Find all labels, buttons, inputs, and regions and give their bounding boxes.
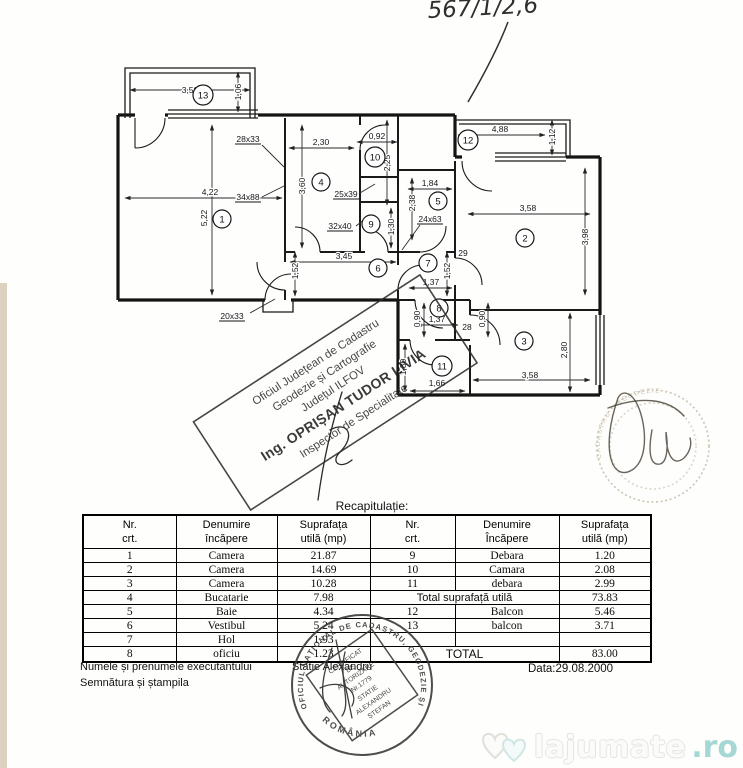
balcony-12-walls [455, 120, 570, 157]
cell: Camera [176, 577, 277, 591]
cell: 2.08 [559, 563, 651, 577]
stamp-line: Inspector de Specialitate [298, 382, 410, 461]
cell: 10.28 [277, 577, 370, 591]
dim-label: 1,80 [398, 358, 408, 375]
svg-text:567/1/2,6: 567/1/2,6 [427, 0, 539, 24]
stamp-line: Oficiul Județean de Cadastru [250, 317, 381, 408]
recap-title: Recapitulație: [82, 499, 662, 513]
window-band-room3 [596, 315, 604, 385]
table-row: 3 Camera 10.28 11 debara 2.99 [83, 577, 651, 591]
room-number: 12 [463, 135, 474, 146]
cert-line: ALEXANDRU [355, 687, 393, 717]
dim-label: 4,22 [202, 187, 219, 197]
dim-label: 3,58 [522, 370, 539, 380]
faint-round-stamp: CADASTRU · GEODEZIE · [595, 388, 709, 502]
interior-walls [285, 115, 600, 395]
dim-label: 2,25 [382, 154, 392, 171]
dim-label: 3,60 [297, 177, 307, 194]
cell: 2.99 [559, 577, 651, 591]
total-label: TOTAL [370, 647, 559, 663]
dim-label: 2,80 [559, 341, 569, 358]
dim-label: 1,52 [442, 262, 452, 279]
cell: 3 [83, 577, 176, 591]
stamp-line: Județul ILFOV [299, 364, 367, 414]
entry-threshold [263, 300, 293, 312]
recap-table: Nr. crt. Denumire încăpere Suprafața uti… [82, 514, 652, 663]
signature-stamp-label: Semnătura și ștampila [80, 677, 189, 689]
cell: Bucatarie [176, 591, 277, 605]
dim-label: 3,45 [336, 251, 353, 261]
room-number: 11 [437, 361, 447, 372]
watermark-logo-icon [477, 728, 529, 766]
window-band-room1 [168, 110, 258, 118]
cell: 21.87 [277, 549, 370, 563]
cell: 7.98 [277, 591, 370, 605]
cell [370, 633, 455, 647]
cell [559, 633, 651, 647]
handwritten-number: 567/1/2,6 [427, 0, 539, 102]
dim-label: 3,58 [520, 203, 537, 213]
cert-line: ȘTEFAN [367, 699, 393, 720]
cell: 8 [83, 647, 176, 663]
table-header-row: Nr. crt. Denumire încăpere Suprafața uti… [83, 515, 651, 549]
cell: 9 [370, 549, 455, 563]
cell: Camera [176, 549, 277, 563]
svg-text:ROMÂNIA: ROMÂNIA [321, 714, 379, 738]
dimension-labels: 3,50 1,06 28x33 2,30 0,92 4,88 1,12 34x8… [182, 83, 590, 388]
svg-text:CADASTRU · GEODEZIE ·: CADASTRU · GEODEZIE · [595, 388, 669, 460]
cell: 2 [83, 563, 176, 577]
dim-label: 1,12 [547, 128, 557, 145]
table-row: 5 Baie 4.34 12 Balcon 5.46 [83, 605, 651, 619]
cell: oficiu [176, 647, 277, 663]
scan-edge-shadow [0, 283, 7, 768]
cell: 14.69 [277, 563, 370, 577]
dim-label: 28 [462, 322, 472, 332]
dim-label: 34x88 [236, 192, 259, 202]
cell: Vestibul [176, 619, 277, 633]
window-band-room2 [495, 153, 566, 161]
dim-label: 4,88 [492, 124, 509, 134]
cell: 1.20 [559, 549, 651, 563]
dimension-lines [125, 72, 590, 392]
executant-label: Numele și prenumele executantului [80, 661, 252, 673]
header-cell: Suprafața utilă (mp) [559, 515, 651, 549]
dim-label: 1,37 [423, 277, 440, 287]
dim-label: 3,98 [580, 228, 590, 245]
date: Data:29.08.2000 [528, 663, 613, 675]
cell: 5 [83, 605, 176, 619]
watermark-tld: .ro [691, 730, 738, 765]
cell: 6 [83, 619, 176, 633]
dim-label: 25x39 [334, 189, 357, 199]
watermark-name: lajumate [534, 730, 686, 765]
dim-label: 5,22 [199, 209, 209, 226]
stamp-line: Geodezie și Cartografie [271, 338, 379, 414]
exterior-walls [118, 115, 600, 395]
diagonal-inspector-stamp: Oficiul Județean de Cadastru Geodezie și… [193, 275, 477, 510]
cell: 7 [83, 633, 176, 647]
total-value: 83.00 [559, 647, 651, 663]
dim-label: 1,06 [233, 83, 243, 100]
table-row: 4 Bucatarie 7.98 Total suprafață utilă 7… [83, 591, 651, 605]
scanned-cadastral-document: Recapitulație: Nr. crt. Denumire încăper… [0, 0, 743, 768]
room-numbers: 1 2 3 4 5 6 7 8 9 10 11 12 13 [193, 85, 534, 376]
dim-label: 1,66 [429, 378, 446, 388]
cell: Camera [176, 563, 277, 577]
room-number: 7 [425, 258, 430, 269]
cell: 4 [83, 591, 176, 605]
cell: 10 [370, 563, 455, 577]
door-arcs [135, 118, 500, 365]
cell: 3.71 [559, 619, 651, 633]
dim-label: 24x63 [418, 214, 441, 224]
stamp-line: Ing. OPRIȘAN TUDOR LIVIA [258, 345, 429, 464]
cell: 4.34 [277, 605, 370, 619]
cell: 12 [370, 605, 455, 619]
dim-label: 1,37 [429, 314, 446, 324]
cell: balcon [455, 619, 559, 633]
inspector-signature [318, 392, 352, 500]
room-number: 8 [436, 303, 441, 314]
room-number: 13 [198, 90, 209, 101]
cell: 13 [370, 619, 455, 633]
cell: 11 [370, 577, 455, 591]
watermark: lajumate.ro [477, 728, 738, 766]
cell: 1.93 [277, 633, 370, 647]
dim-label: 1,30 [386, 218, 396, 235]
header-cell: Suprafața utilă (mp) [277, 515, 370, 549]
room-number: 3 [521, 336, 526, 347]
dim-label: 2,30 [313, 137, 330, 147]
total-util-value: 73.83 [559, 591, 651, 605]
cell: 5.46 [559, 605, 651, 619]
dim-label: 1,84 [422, 178, 439, 188]
cell [455, 633, 559, 647]
table-row: 8 oficiu 1.23 TOTAL 83.00 [83, 647, 651, 663]
cert-line: Nr.1779 [350, 675, 374, 695]
dim-label: 0,90 [412, 310, 422, 327]
dim-label: 29 [458, 248, 468, 258]
stamp-country: ROMÂNIA [321, 714, 379, 738]
table-row: 1 Camera 21.87 9 Debara 1.20 [83, 549, 651, 563]
executant-name: Statie Alexandru [292, 661, 372, 673]
cert-line: STATIE [357, 684, 380, 703]
room-number: 9 [368, 219, 373, 230]
cell: debara [455, 577, 559, 591]
room-number: 4 [318, 177, 323, 188]
total-util-label: Total suprafață utilă [370, 591, 559, 605]
dim-label: 1,52 [290, 262, 300, 279]
cell: Balcon [455, 605, 559, 619]
floor-plan: 3,50 1,06 28x33 2,30 0,92 4,88 1,12 34x8… [118, 68, 604, 395]
dim-label: 0,90 [477, 310, 487, 327]
dim-label: 0,92 [369, 131, 386, 141]
cell: 1.23 [277, 647, 370, 663]
room-number: 2 [522, 233, 527, 244]
header-cell: Denumire încăpere [176, 515, 277, 549]
cell: Debara [455, 549, 559, 563]
room-number: 5 [435, 196, 440, 207]
balcony-13-walls [125, 68, 255, 118]
dim-label: 32x40 [328, 221, 351, 231]
faint-ring-text: CADASTRU · GEODEZIE · [595, 388, 669, 460]
dim-label: 20x33 [220, 311, 243, 321]
room-number: 1 [219, 214, 224, 225]
table-row: 7 Hol 1.93 [83, 633, 651, 647]
table-row: 6 Vestibul 5.24 13 balcon 3.71 [83, 619, 651, 633]
dim-label: 3,50 [182, 85, 199, 95]
header-cell: Denumire Încăpere [455, 515, 559, 549]
dim-label: 28x33 [236, 134, 259, 144]
cell: 5.24 [277, 619, 370, 633]
dim-label: 2,38 [407, 194, 417, 211]
header-cell: Nr. crt. [370, 515, 455, 549]
cell: Baie [176, 605, 277, 619]
cell: Hol [176, 633, 277, 647]
cell: 1 [83, 549, 176, 563]
table-row: 2 Camera 14.69 10 Camara 2.08 [83, 563, 651, 577]
header-cell: Nr. crt. [83, 515, 176, 549]
room-number: 6 [375, 263, 380, 274]
leader-lines [219, 144, 443, 321]
cell: Camara [455, 563, 559, 577]
room-number: 10 [370, 152, 381, 163]
